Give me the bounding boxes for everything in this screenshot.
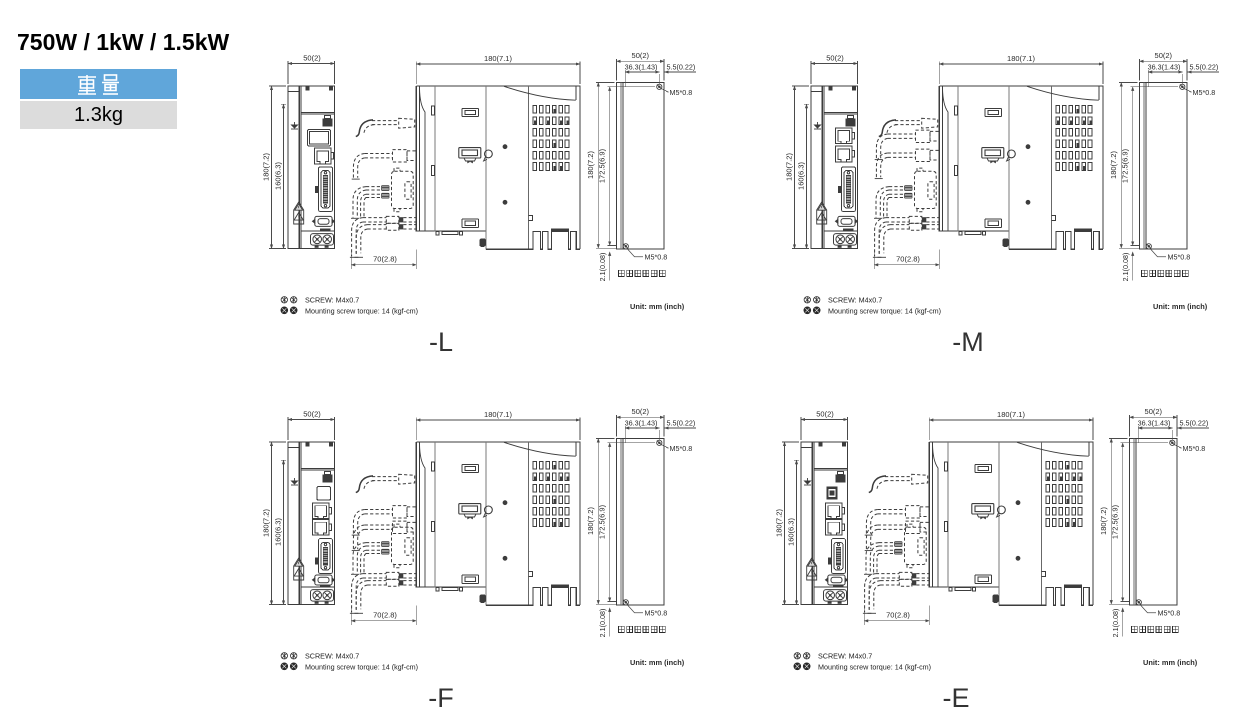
svg-text:-L: -L [429, 327, 453, 357]
svg-text:-M: -M [952, 327, 983, 357]
svg-text:-F: -F [428, 683, 453, 713]
svg-text:-E: -E [943, 683, 970, 713]
